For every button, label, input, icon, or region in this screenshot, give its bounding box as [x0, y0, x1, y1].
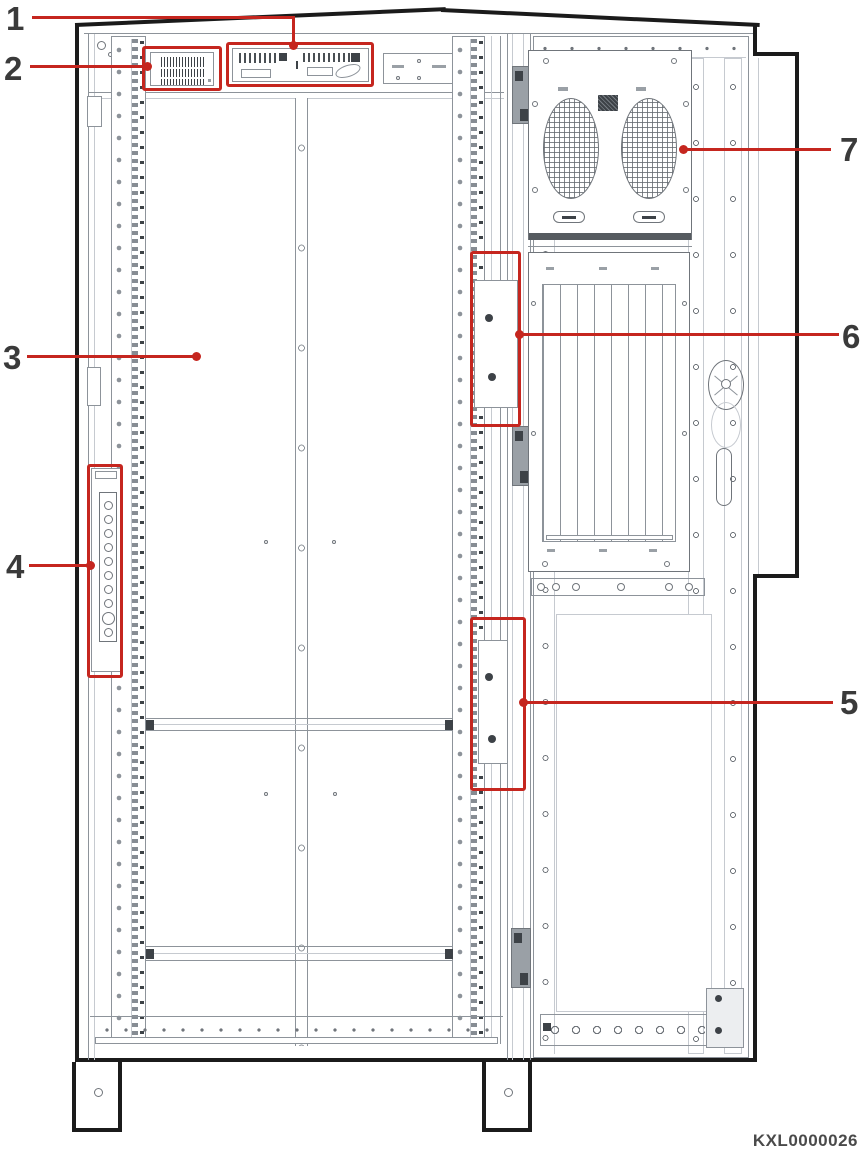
- cross-rail-lower: [146, 946, 453, 961]
- handle-slot: [562, 216, 576, 219]
- frame-line: [88, 92, 504, 93]
- rail-square-holes: [140, 41, 144, 1039]
- mullion-line: [523, 34, 524, 1060]
- side-step-bottom: [753, 574, 799, 578]
- panel-screw: [264, 792, 268, 796]
- callout-1-dot: [289, 41, 298, 50]
- rail-end-cap: [445, 949, 453, 959]
- figure-code: KXL0000026: [700, 1131, 858, 1155]
- callout-2-dot: [143, 62, 152, 71]
- door-handle-lever: [716, 448, 732, 506]
- rail-bolt: [537, 583, 545, 591]
- panel-screw: [542, 561, 548, 567]
- panel-screw: [543, 58, 549, 64]
- panel-screw: [683, 101, 689, 107]
- callout-2-line: [30, 65, 148, 68]
- panel-screw: [683, 187, 689, 193]
- bottom-hole-circles: [545, 1021, 705, 1039]
- louver-panel: [528, 252, 690, 572]
- louver-bottom-mark: [547, 549, 555, 552]
- panel-screw: [531, 301, 536, 306]
- frame-line: [491, 36, 492, 1044]
- mullion-line: [512, 34, 513, 1060]
- callout-1-label: 1: [6, 1, 32, 39]
- callout-5-label: 5: [840, 685, 860, 723]
- hinge-pin: [520, 973, 528, 985]
- callout-2-label: 2: [4, 51, 30, 89]
- door-corner-block: [706, 988, 744, 1048]
- cabinet-front-view-diagram: 1 2 3 4 5 6 7 KXL0000026: [0, 0, 860, 1158]
- rail-hole-pattern: [454, 39, 466, 1041]
- rail-bolt: [685, 583, 693, 591]
- cabinet-left-edge: [75, 25, 79, 1062]
- door-mid-rail: [531, 578, 705, 596]
- panel-screw: [682, 431, 687, 436]
- rail-end-cap: [146, 949, 154, 959]
- callout-6-label: 6: [842, 319, 860, 357]
- corner-bolt: [715, 1027, 722, 1034]
- fan-panel: [528, 50, 692, 240]
- door-hinge-bottom: [511, 928, 531, 988]
- callout-3-dot: [192, 352, 201, 361]
- panel-screw: [532, 187, 538, 193]
- left-foot: [72, 1062, 122, 1132]
- panel-screw: [417, 59, 421, 63]
- side-step-top: [753, 52, 799, 56]
- side-panel-line: [758, 58, 759, 574]
- panel-screw: [417, 76, 421, 80]
- cross-rail-upper: [146, 718, 453, 731]
- callout-4-box: [87, 464, 123, 678]
- mullion-line: [507, 34, 508, 1060]
- frame-line: [500, 36, 501, 1044]
- fan-handle-right: [633, 211, 665, 223]
- hinge-pin: [514, 933, 522, 943]
- louver-bottom-bar: [546, 535, 673, 540]
- lever-line: [724, 455, 725, 501]
- panel-screw: [532, 101, 538, 107]
- right-foot: [482, 1062, 532, 1132]
- callout-5-line: [523, 701, 833, 704]
- callout-1-box: [226, 42, 374, 87]
- louver-top-mark: [546, 267, 554, 270]
- top-info-panel: [383, 53, 453, 84]
- fan-label-text: [636, 87, 646, 91]
- hinge-pin: [520, 471, 528, 483]
- louver-bottom-mark: [649, 549, 657, 552]
- callout-7-label: 7: [840, 132, 860, 170]
- frame-line: [528, 246, 692, 247]
- callout-4-line: [29, 564, 92, 567]
- left-foot-bolt: [94, 1088, 103, 1097]
- louver-top-mark: [599, 267, 607, 270]
- panel-screw: [671, 58, 677, 64]
- callout-7-dot: [679, 145, 688, 154]
- fan-panel-bottom-bar: [529, 233, 691, 240]
- hinge-pin: [520, 109, 528, 121]
- center-post: [295, 98, 308, 1046]
- panel-screw: [396, 76, 400, 80]
- callout-5-dot: [519, 698, 528, 707]
- callout-3-label: 3: [3, 340, 29, 378]
- callout-5-box: [470, 617, 526, 791]
- callout-2-box: [142, 46, 222, 91]
- callout-4-dot: [86, 561, 95, 570]
- door-bottom-rail: [540, 1014, 712, 1046]
- rail-slot-pattern: [131, 39, 138, 1041]
- handle-slot: [642, 216, 656, 219]
- panel-screw: [682, 301, 687, 306]
- hinge-pin: [515, 431, 523, 441]
- lower-door-panel: [556, 614, 712, 1012]
- rail-end-cap: [445, 720, 453, 730]
- fan-grille-left: [543, 98, 599, 199]
- callout-6-box: [470, 251, 521, 427]
- callout-4-label: 4: [6, 549, 32, 587]
- callout-1-line: [292, 16, 295, 44]
- rail-bolt: [552, 583, 560, 591]
- fan-panel-label: [598, 95, 618, 111]
- panel-screw: [531, 431, 536, 436]
- fan-label-text: [558, 87, 568, 91]
- bottom-hole-row: [98, 1027, 498, 1033]
- bottom-rail: [90, 1016, 503, 1050]
- rail-bolt: [617, 583, 625, 591]
- bottom-bar: [95, 1037, 498, 1044]
- louver-slats: [542, 284, 676, 542]
- panel-screw: [332, 540, 336, 544]
- callout-3-line: [27, 355, 197, 358]
- left-side-tab: [87, 96, 102, 127]
- callout-7-line: [683, 148, 831, 151]
- door-lock-linkage: [711, 402, 741, 448]
- label-text-smudge: [392, 65, 404, 68]
- mounting-rail-right: [452, 36, 485, 1044]
- rail-end-cap: [146, 720, 154, 730]
- callout-6-line: [519, 333, 839, 336]
- side-step-right: [795, 52, 799, 578]
- right-foot-bolt: [504, 1088, 513, 1097]
- callout-6-dot: [515, 330, 524, 339]
- frame-top-line: [84, 33, 753, 34]
- louver-top-mark: [651, 267, 659, 270]
- panel-screw: [664, 561, 670, 567]
- cabinet-bottom-edge: [75, 1058, 757, 1062]
- rail-bolt: [665, 583, 673, 591]
- frame-line: [154, 953, 445, 954]
- cabinet-right-edge-lower: [753, 574, 757, 1062]
- cam-center: [721, 379, 731, 389]
- rail-bolt: [572, 583, 580, 591]
- left-side-tab: [87, 367, 101, 406]
- fan-handle-left: [553, 211, 585, 223]
- hinge-pin: [515, 71, 523, 81]
- panel-screw: [264, 540, 268, 544]
- corner-bolt: [715, 995, 722, 1002]
- door-right-rail: [724, 58, 742, 1054]
- frame-line: [154, 724, 445, 725]
- rail-slot-pattern: [470, 39, 477, 1041]
- callout-1-line: [32, 16, 295, 19]
- fan-grille-right: [621, 98, 677, 199]
- corner-screw: [97, 41, 106, 50]
- label-text-smudge: [432, 65, 446, 68]
- rail-end-cap: [543, 1023, 551, 1031]
- roof-line-right: [441, 8, 760, 27]
- panel-screw: [333, 792, 337, 796]
- louver-bottom-mark: [599, 549, 607, 552]
- rail-square-holes: [479, 41, 483, 1039]
